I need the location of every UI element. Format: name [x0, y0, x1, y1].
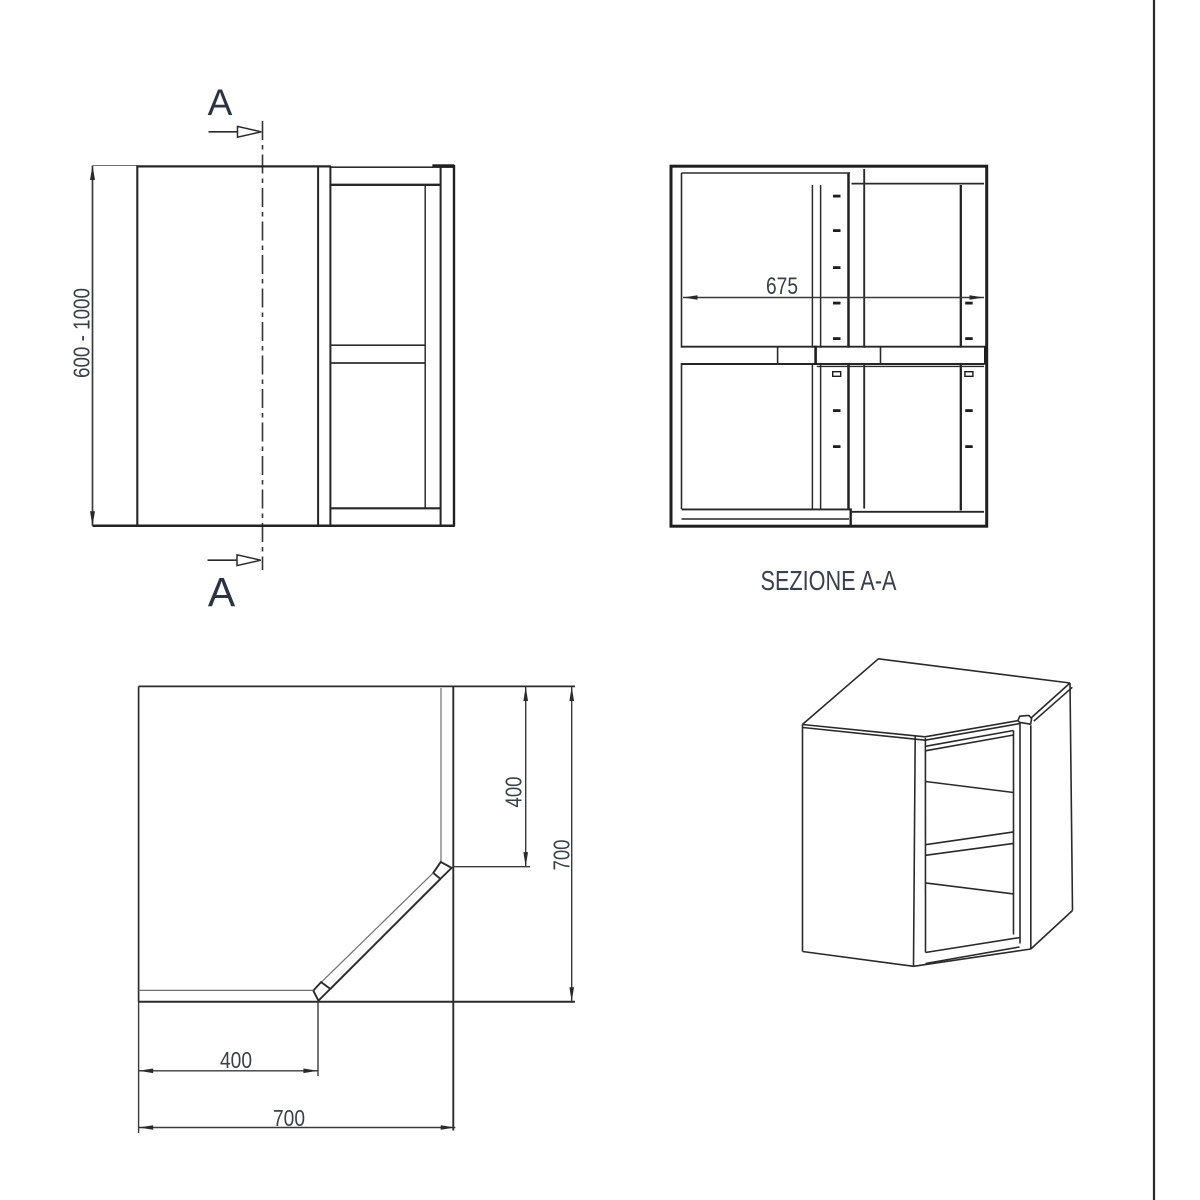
- svg-text:675: 675: [766, 273, 798, 300]
- svg-text:A: A: [208, 82, 233, 123]
- svg-text:400: 400: [220, 1047, 252, 1073]
- svg-text:A: A: [208, 569, 236, 615]
- svg-text:700: 700: [273, 1105, 305, 1131]
- svg-text:400: 400: [501, 777, 527, 808]
- svg-text:600 - 1000: 600 - 1000: [69, 288, 95, 378]
- svg-text:700: 700: [549, 840, 575, 871]
- svg-text:SEZIONE A-A: SEZIONE A-A: [761, 565, 897, 596]
